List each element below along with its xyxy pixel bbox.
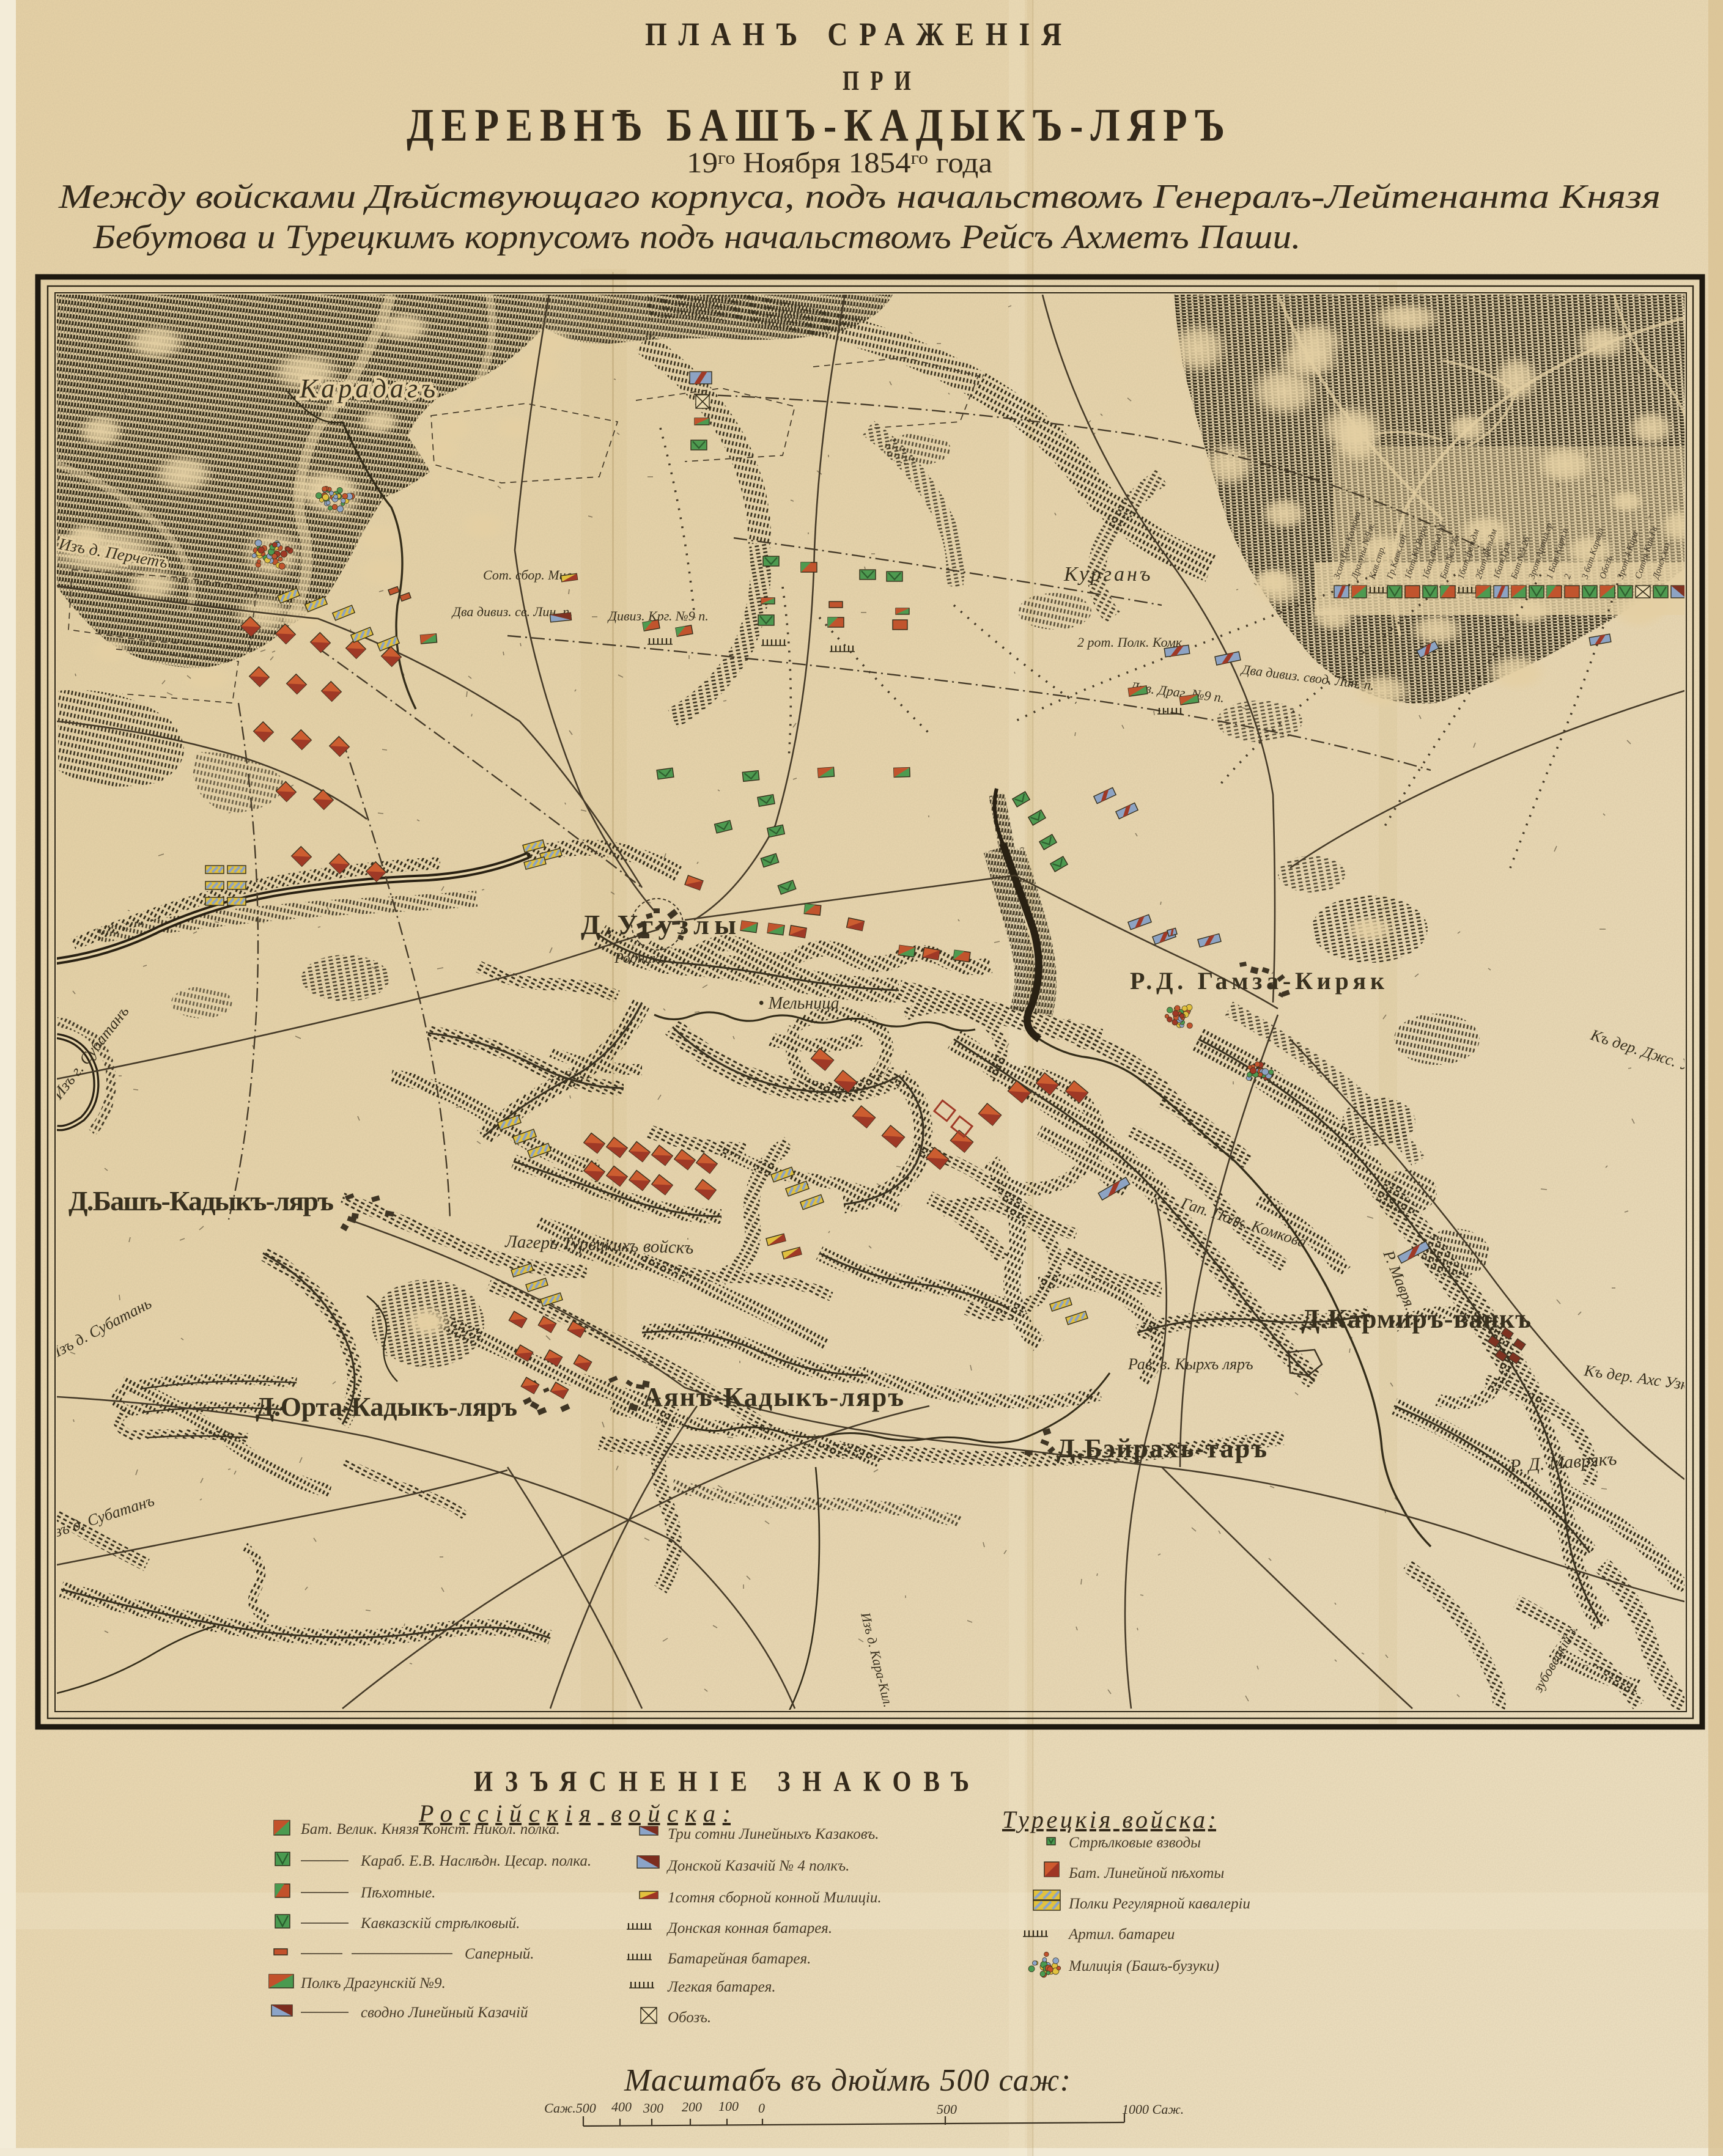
svg-text:ИЗЪЯСНЕНІЕ ЗНАКОВЪ: ИЗЪЯСНЕНІЕ ЗНАКОВЪ [474, 1765, 981, 1798]
svg-text:Обозъ.: Обозъ. [668, 2009, 711, 2026]
svg-text:Саж.500: Саж.500 [544, 2100, 596, 2116]
svg-text:Три сотни Линейныхъ Казаковъ.: Три сотни Линейныхъ Казаковъ. [668, 1826, 879, 1842]
svg-text:400: 400 [611, 2099, 632, 2114]
svg-text:Полки Регулярной кавалеріи: Полки Регулярной кавалеріи [1068, 1896, 1250, 1912]
svg-text:Донской Казачій № 4 полкъ.: Донской Казачій № 4 полкъ. [666, 1858, 849, 1874]
svg-text:сводно Линейный Казачій: сводно Линейный Казачій [361, 2004, 528, 2021]
svg-text:Бат. Велик. Князя Конст. Никол: Бат. Велик. Князя Конст. Никол. полка. [300, 1821, 560, 1838]
svg-text:Саперный.: Саперный. [465, 1946, 534, 1962]
svg-text:Артил. батареи: Артил. батареи [1068, 1926, 1175, 1943]
svg-text:500: 500 [937, 2102, 957, 2117]
svg-text:Пѣхотные.: Пѣхотные. [360, 1885, 435, 1901]
svg-text:ДЕРЕВНѢ БАШЪ-КАДЫКЪ-ЛЯРЪ: ДЕРЕВНѢ БАШЪ-КАДЫКЪ-ЛЯРЪ [407, 100, 1232, 151]
svg-text:Караб. Е.В. Наслѣдн. Цесар. по: Караб. Е.В. Наслѣдн. Цесар. полка. [360, 1853, 591, 1869]
svg-text:Между войсками Дѣйствующаго ко: Между войсками Дѣйствующаго корпуса, под… [58, 178, 1661, 216]
svg-text:200: 200 [682, 2099, 702, 2114]
svg-text:Бебутова и Турецкимъ корпусомъ: Бебутова и Турецкимъ корпусомъ подъ нача… [92, 218, 1301, 256]
svg-text:Кавказскій стрѣлковый.: Кавказскій стрѣлковый. [360, 1915, 520, 1932]
svg-text:0: 0 [758, 2100, 765, 2116]
svg-text:Стрѣлковые взводы: Стрѣлковые взводы [1069, 1834, 1201, 1851]
svg-text:1000 Саж.: 1000 Саж. [1122, 2102, 1184, 2117]
svg-text:100: 100 [718, 2099, 739, 2114]
svg-text:Милиція (Башъ-бузуки): Милиція (Башъ-бузуки) [1068, 1958, 1219, 1974]
svg-text:ПРИ: ПРИ [843, 65, 922, 96]
svg-text:ПЛАНЪ СРАЖЕНІЯ: ПЛАНЪ СРАЖЕНІЯ [645, 16, 1073, 53]
svg-text:Бат. Линейной пѣхоты: Бат. Линейной пѣхоты [1068, 1865, 1224, 1882]
svg-text:Донская конная батарея.: Донская конная батарея. [666, 1920, 832, 1937]
svg-text:Батарейная батарея.: Батарейная батарея. [667, 1951, 811, 1967]
svg-text:Полкъ Драгунскій №9.: Полкъ Драгунскій №9. [300, 1975, 446, 1992]
svg-text:300: 300 [643, 2100, 663, 2116]
svg-text:1сотня сборной конной Милиціи.: 1сотня сборной конной Милиціи. [668, 1889, 882, 1906]
svg-text:Легкая батарея.: Легкая батарея. [667, 1979, 776, 1995]
svg-text:Турецкія войска:: Турецкія войска: [1002, 1806, 1216, 1833]
